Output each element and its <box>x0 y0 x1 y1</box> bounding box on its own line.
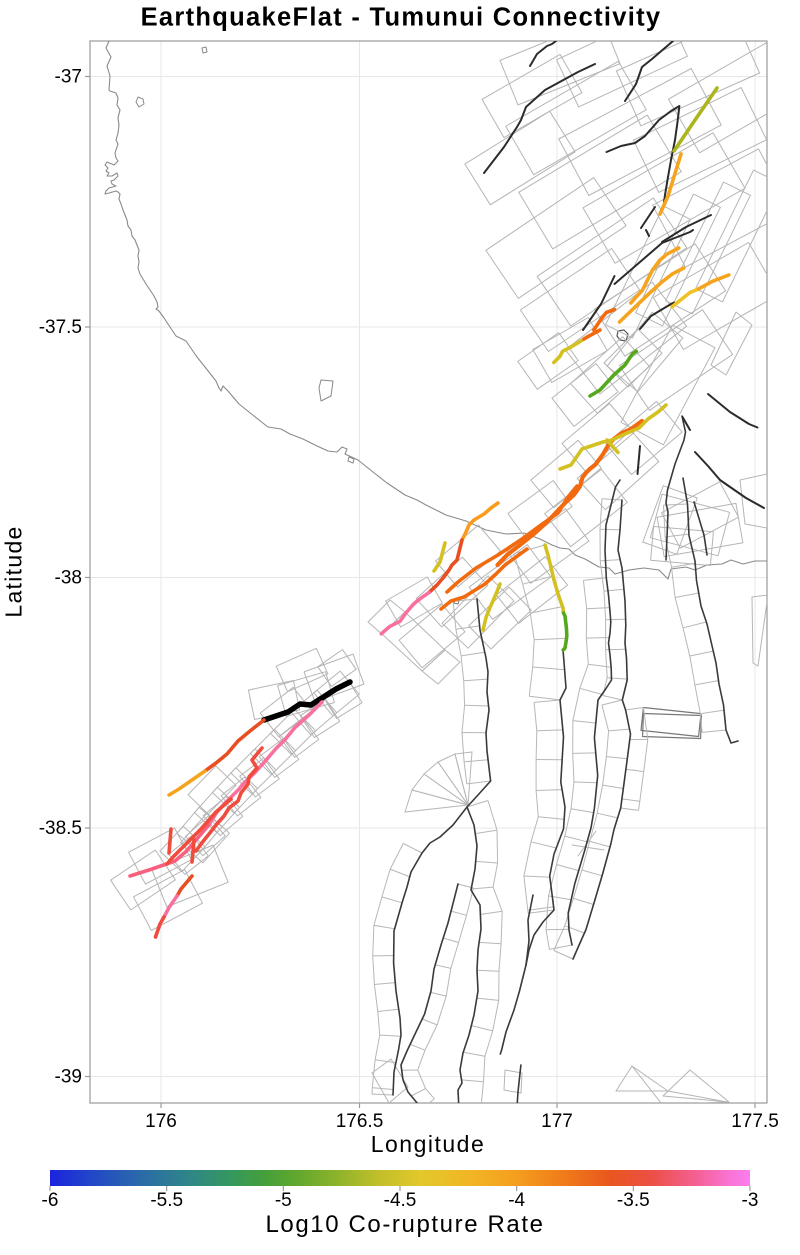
svg-text:Longitude: Longitude <box>371 1131 486 1157</box>
svg-text:176.5: 176.5 <box>336 1111 384 1132</box>
svg-text:-4.5: -4.5 <box>384 1190 417 1211</box>
svg-text:-37: -37 <box>55 67 82 88</box>
svg-text:Log10 Co-rupture Rate: Log10 Co-rupture Rate <box>265 1211 544 1238</box>
svg-text:EarthquakeFlat - Tumunui Conne: EarthquakeFlat - Tumunui Connectivity <box>141 4 662 32</box>
svg-text:-39: -39 <box>55 1067 82 1088</box>
svg-text:-5.5: -5.5 <box>150 1190 183 1211</box>
svg-text:-38.5: -38.5 <box>39 818 82 839</box>
svg-text:-6: -6 <box>42 1190 59 1211</box>
svg-text:Latitude: Latitude <box>1 525 27 617</box>
svg-text:176: 176 <box>145 1111 177 1132</box>
svg-text:177.5: 177.5 <box>731 1111 779 1132</box>
svg-text:-37.5: -37.5 <box>39 317 82 338</box>
svg-text:-3: -3 <box>742 1190 759 1211</box>
svg-text:-4: -4 <box>508 1190 525 1211</box>
svg-text:-5: -5 <box>275 1190 292 1211</box>
svg-text:-38: -38 <box>55 568 82 589</box>
svg-text:177: 177 <box>541 1111 573 1132</box>
svg-text:-3.5: -3.5 <box>617 1190 650 1211</box>
